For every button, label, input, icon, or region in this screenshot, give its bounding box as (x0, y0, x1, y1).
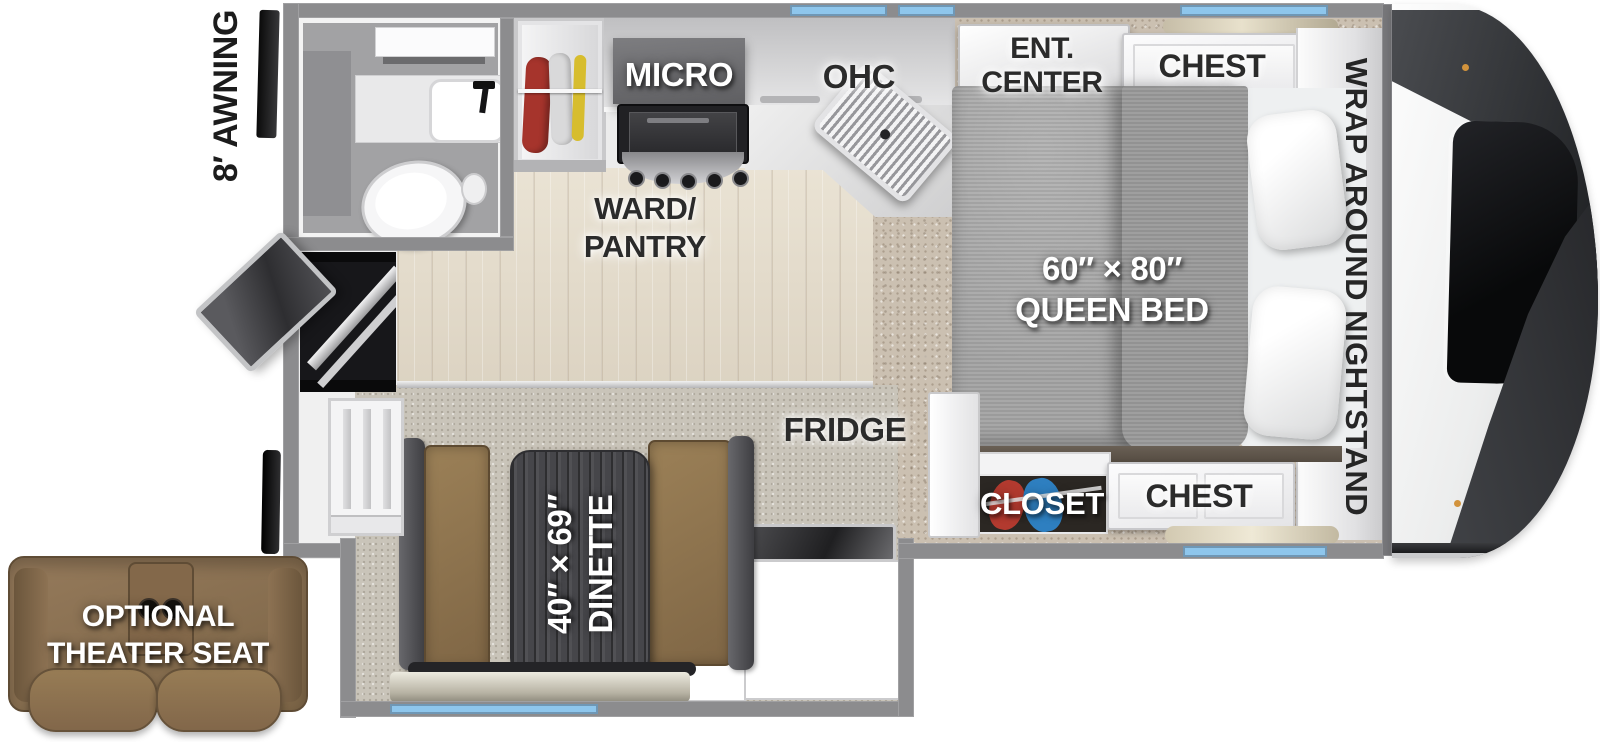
window-slideout (390, 704, 598, 714)
chest-top-label: CHEST (1122, 48, 1302, 85)
step-rib (343, 409, 351, 509)
theater-cushion (28, 668, 158, 732)
dinette-step-bar (390, 672, 690, 702)
bed-size-text: 60″ × 80″ (1002, 248, 1222, 289)
wall-slideout-right (898, 538, 914, 717)
dinette-size-text: 40″ × 69″ (539, 494, 580, 634)
theater-cushion (156, 668, 282, 732)
bed-name-text: QUEEN BED (1002, 289, 1222, 330)
window-top-2 (898, 5, 955, 16)
closet-label: CLOSET (962, 486, 1122, 522)
stove-knob (706, 172, 723, 189)
nightstand-label: WRAP AROUND NIGHTSTAND (1330, 42, 1374, 532)
step-rib (363, 409, 371, 509)
bathroom-cabinet (375, 27, 495, 57)
theater-seat-label: OPTIONAL THEATER SEAT (8, 598, 308, 672)
entry-step-pad (750, 524, 896, 562)
clothes-white (548, 53, 573, 146)
doorway-frame-bottom (300, 380, 396, 392)
ohc-handle-icon (760, 96, 820, 103)
floor-transition-strip (397, 381, 873, 388)
ent-center-label: ENT. CENTER (958, 32, 1126, 100)
stove-knob (628, 170, 645, 187)
stove-knob (654, 172, 671, 189)
stove (617, 104, 749, 188)
ohc-label: OHC (799, 58, 919, 96)
wardrobe-rod-icon (518, 89, 602, 93)
camper-floorplan: 40″ × 69″ DINETTE (0, 0, 1600, 742)
chest-bottom-label: CHEST (1107, 478, 1291, 515)
awning-label: 8′ AWNING (207, 1, 249, 191)
entry-steps (328, 398, 404, 536)
fridge-label: FRIDGE (775, 411, 915, 449)
wardrobe-cap (514, 160, 606, 172)
step-rib (383, 409, 391, 509)
stove-knob (680, 173, 697, 190)
nose-skirt-trim (1392, 553, 1574, 558)
dinette-table: 40″ × 69″ DINETTE (510, 450, 650, 678)
window-top-1 (790, 5, 887, 16)
theater-line2: THEATER SEAT (8, 635, 308, 672)
bathroom-wall-shade (303, 51, 351, 216)
awning-roller-icon (256, 10, 279, 138)
micro-label: MICRO (613, 56, 745, 94)
dinette-label: 40″ × 69″ DINETTE (539, 494, 621, 634)
truck-nose-cap (1392, 4, 1598, 558)
step-well (743, 560, 900, 700)
wall-front (1382, 4, 1392, 556)
ent-line1: ENT. (958, 32, 1126, 66)
clothes-red (522, 56, 553, 153)
marker-light-icon (1454, 500, 1461, 507)
ward-line2: PANTRY (560, 228, 730, 266)
oven-handle-icon (647, 118, 709, 123)
dinette-backrest-right (728, 436, 754, 670)
queen-bed-label: 60″ × 80″ QUEEN BED (1002, 248, 1222, 330)
bed-mat (1165, 526, 1339, 544)
wall-slideout-left (340, 538, 356, 718)
window-bottom-right (1183, 546, 1327, 557)
wardrobe (514, 17, 606, 167)
toilet-flush-knob (461, 173, 487, 205)
grab-handle-icon (261, 450, 281, 554)
ward-pantry-label: WARD/ PANTRY (560, 190, 730, 266)
dinette-bench-left (424, 445, 490, 669)
sink-drain-icon (878, 127, 892, 141)
window-top-3 (1180, 5, 1328, 16)
doorway-frame-top (300, 252, 396, 262)
ent-line2: CENTER (958, 66, 1126, 100)
step-lip (331, 515, 401, 533)
wall-bathroom-bottom (283, 237, 514, 251)
bathroom (297, 17, 504, 239)
ward-line1: WARD/ (560, 190, 730, 228)
bathroom-cabinet-shadow (383, 57, 485, 64)
theater-line1: OPTIONAL (8, 598, 308, 635)
stove-knob (732, 170, 749, 187)
dinette-name-text: DINETTE (580, 494, 621, 634)
wall-bathroom-right (500, 18, 514, 237)
closet-counter (975, 452, 1111, 476)
dinette-bench-right (648, 440, 732, 666)
marker-light-icon (1462, 64, 1469, 71)
